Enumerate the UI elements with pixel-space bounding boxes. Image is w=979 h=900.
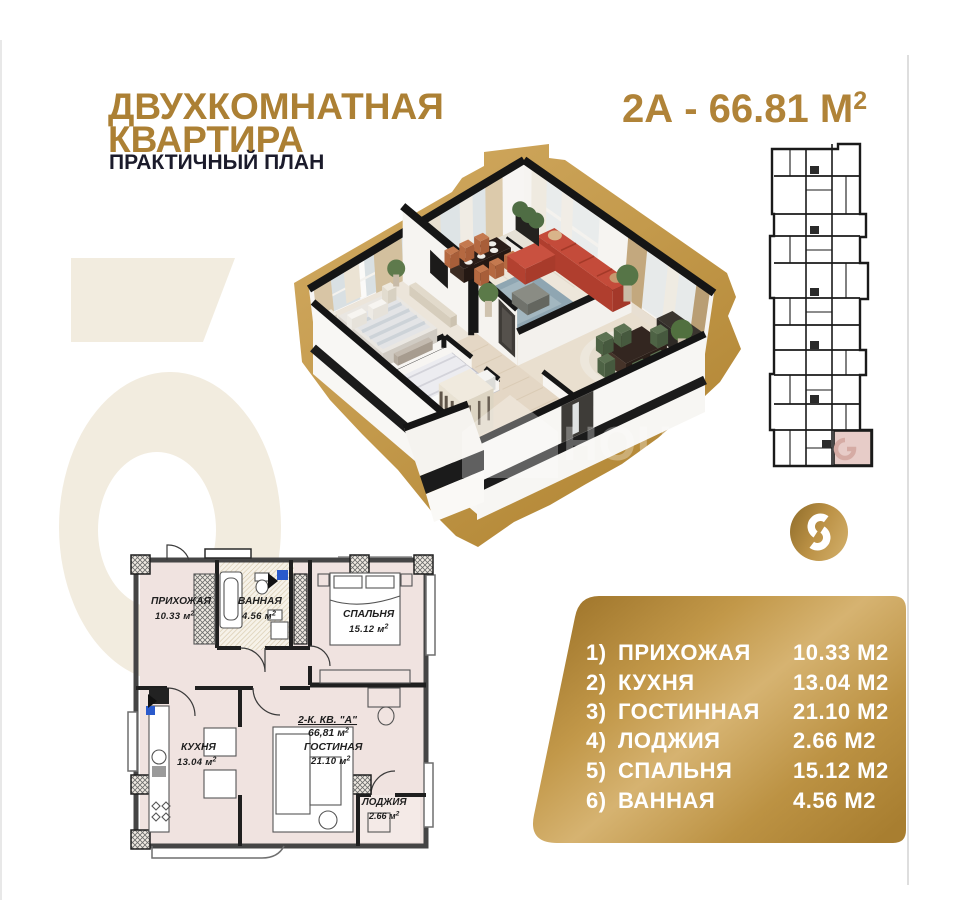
svg-text:ПРАКТИЧНЫЙ ПЛАН: ПРАКТИЧНЫЙ ПЛАН — [109, 150, 324, 174]
svg-text:2.66 м2: 2.66 м2 — [368, 811, 400, 822]
svg-text:КУХНЯ: КУХНЯ — [618, 670, 695, 695]
svg-text:5): 5) — [586, 758, 607, 783]
svg-text:15.12 м2: 15.12 м2 — [349, 624, 389, 636]
svg-text:ГОСТИННАЯ: ГОСТИННАЯ — [618, 699, 760, 724]
svg-text:СПАЛЬНЯ: СПАЛЬНЯ — [618, 758, 732, 783]
svg-text:КУХНЯ: КУХНЯ — [181, 742, 216, 753]
svg-text:13.04 М2: 13.04 М2 — [793, 670, 889, 695]
svg-text:ГОСТИНАЯ: ГОСТИНАЯ — [304, 741, 363, 753]
svg-text:10.33 м2: 10.33 м2 — [155, 611, 195, 623]
svg-text:21.10 м2: 21.10 м2 — [310, 756, 351, 768]
svg-text:ЛОДЖИЯ: ЛОДЖИЯ — [361, 797, 407, 808]
svg-text:ЛОДЖИЯ: ЛОДЖИЯ — [618, 728, 720, 753]
svg-text:6): 6) — [586, 788, 607, 813]
svg-text:НОUSE: НОUSE — [563, 418, 739, 471]
svg-text:СПАЛЬНЯ: СПАЛЬНЯ — [343, 609, 395, 620]
svg-text:ВАННАЯ: ВАННАЯ — [238, 596, 282, 607]
svg-text:4.56 м2: 4.56 м2 — [241, 611, 276, 623]
svg-text:66,81 м2: 66,81 м2 — [308, 727, 349, 739]
svg-text:ВАННАЯ: ВАННАЯ — [618, 788, 715, 813]
svg-text:2.66 М2: 2.66 М2 — [793, 728, 876, 753]
svg-text:21.10 М2: 21.10 М2 — [793, 699, 889, 724]
svg-text:2): 2) — [586, 670, 607, 695]
svg-text:10.33 М2: 10.33 М2 — [793, 640, 889, 665]
svg-text:1): 1) — [586, 640, 607, 665]
svg-text:2-К. КВ. "А": 2-К. КВ. "А" — [297, 714, 358, 726]
svg-text:15.12 М2: 15.12 М2 — [793, 758, 889, 783]
svg-text:4.56 М2: 4.56 М2 — [793, 788, 876, 813]
svg-text:13.04 м2: 13.04 м2 — [177, 757, 217, 769]
svg-text:3): 3) — [586, 699, 607, 724]
svg-text:2А - 66.81 М2: 2А - 66.81 М2 — [622, 87, 867, 131]
svg-text:ПРИХОЖАЯ: ПРИХОЖАЯ — [151, 596, 211, 607]
svg-text:ПРИХОЖАЯ: ПРИХОЖАЯ — [618, 640, 751, 665]
svg-text:4): 4) — [586, 728, 607, 753]
